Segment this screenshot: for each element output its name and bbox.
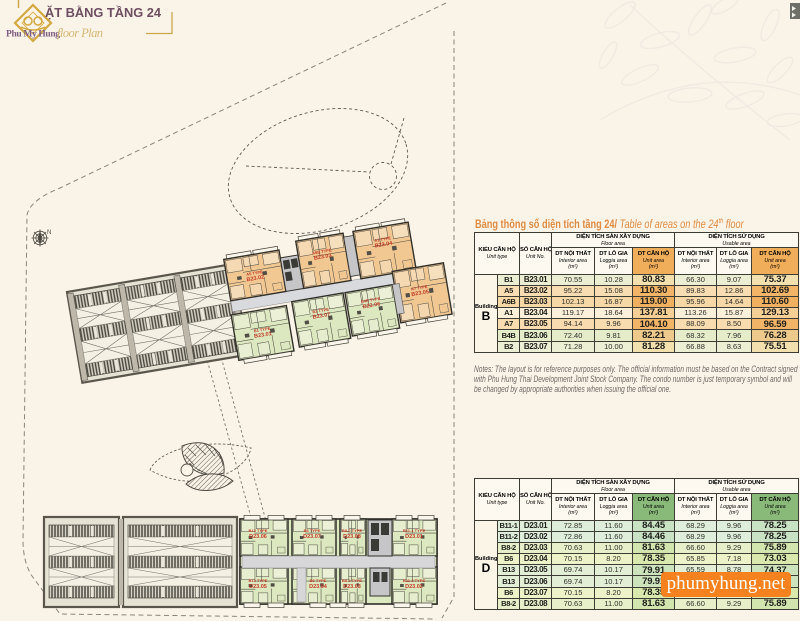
svg-text:N: N	[47, 230, 51, 236]
svg-text:B6 TYPE: B6 TYPE	[310, 578, 327, 583]
svg-text:B11-1 TYPE: B11-1 TYPE	[403, 528, 426, 533]
svg-text:D23.04: D23.04	[309, 584, 328, 590]
svg-text:B8-2 TYPE: B8-2 TYPE	[342, 578, 363, 583]
svg-text:D23.06: D23.06	[249, 534, 267, 540]
svg-text:D23.05: D23.05	[249, 584, 267, 590]
svg-text:ẶT BẰNG TẦNG 24: ẶT BẰNG TẦNG 24	[45, 5, 161, 20]
svg-text:D23.08: D23.08	[343, 534, 361, 540]
svg-text:B6 TYPE: B6 TYPE	[304, 528, 321, 533]
svg-text:D23.02: D23.02	[405, 584, 423, 590]
svg-text:floor Plan: floor Plan	[57, 26, 103, 40]
svg-text:B13 TYPE: B13 TYPE	[249, 528, 268, 533]
svg-text:B13 TYPE: B13 TYPE	[249, 578, 268, 583]
svg-text:B8-2 TYPE: B8-2 TYPE	[342, 528, 363, 533]
svg-text:B11-2 TYPE: B11-2 TYPE	[403, 578, 426, 583]
svg-text:Phu My Hung: Phu My Hung	[6, 30, 60, 40]
svg-text:D23.07: D23.07	[303, 534, 321, 540]
svg-text:D23.03: D23.03	[343, 584, 361, 590]
svg-text:D23.01: D23.01	[405, 534, 423, 540]
